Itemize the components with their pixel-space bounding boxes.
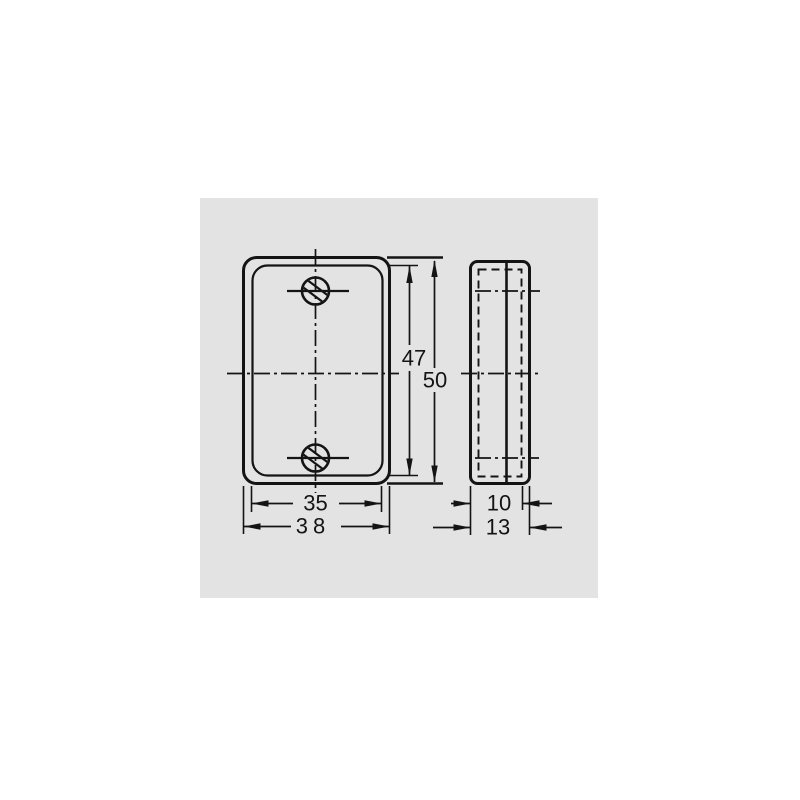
dimension-outer-height: 50 — [387, 258, 447, 484]
dimension-label-10: 10 — [487, 491, 511, 516]
front-view — [227, 249, 399, 493]
dimension-inner-width: 35 — [252, 486, 382, 516]
dimension-label-38: 38 — [296, 514, 330, 539]
arrowhead-right — [454, 500, 471, 506]
arrowhead-left — [252, 500, 269, 506]
drawing-panel: 47 50 35 — [200, 198, 598, 598]
dimension-label-35: 35 — [303, 491, 327, 516]
hole-bottom — [287, 442, 349, 476]
dimension-label-13: 13 — [486, 515, 510, 540]
arrowhead-down — [406, 459, 412, 476]
dimension-inner-height: 47 — [387, 266, 426, 476]
arrowhead-down — [431, 466, 437, 483]
arrowhead-up — [431, 260, 437, 277]
technical-drawing: 47 50 35 — [200, 198, 598, 598]
arrowhead-left — [523, 500, 540, 506]
page: 47 50 35 — [0, 0, 800, 800]
arrowhead-left — [244, 523, 261, 529]
arrowhead-right — [454, 524, 471, 530]
hole-top — [287, 275, 349, 309]
arrowhead-up — [406, 266, 412, 283]
dimension-inner-thickness: 10 — [451, 486, 552, 516]
side-view — [461, 262, 540, 484]
arrowhead-right — [373, 523, 390, 529]
arrowhead-left — [530, 524, 547, 530]
arrowhead-right — [365, 500, 382, 506]
dimension-label-50: 50 — [423, 368, 447, 393]
